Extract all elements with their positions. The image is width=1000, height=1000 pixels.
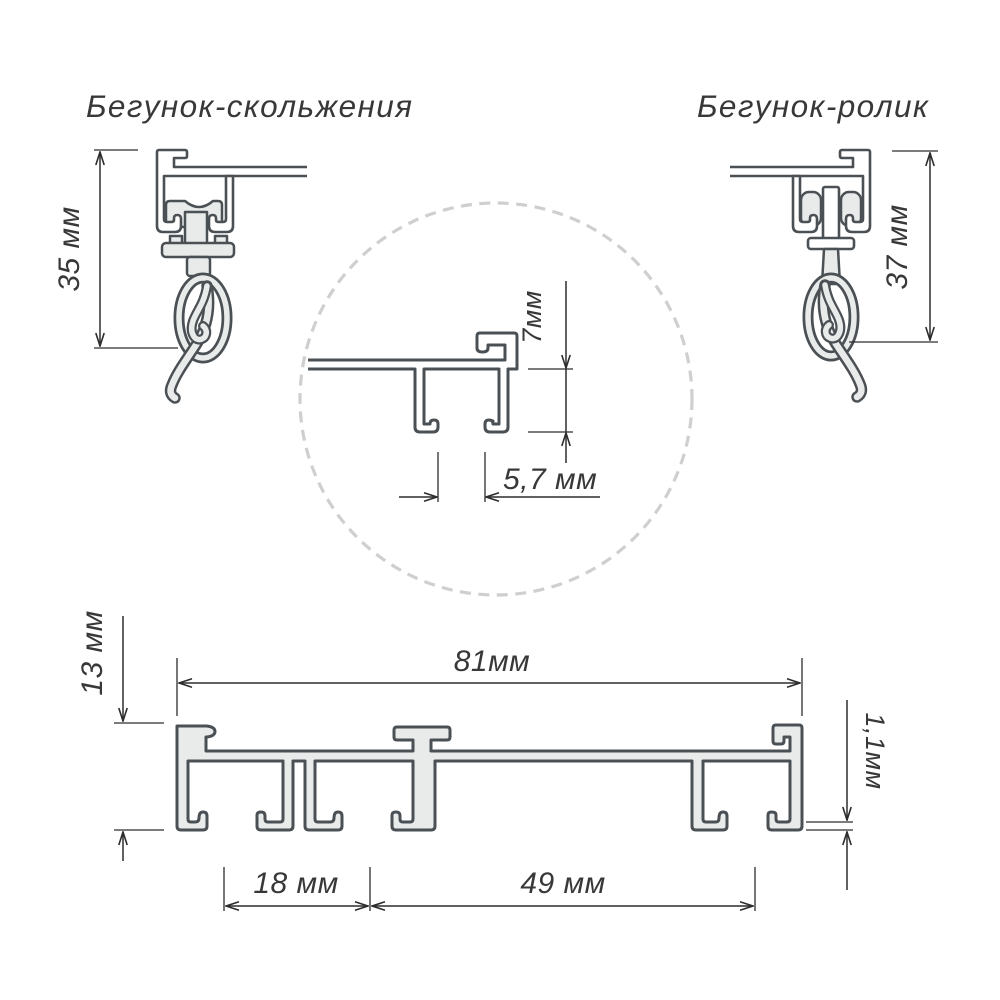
slider-runner-title: Бегунок-скольжения [86,88,413,124]
dim-slot-width: 5,7 мм [399,452,600,502]
slider-glider-neck [185,212,207,244]
second-groove-label: 49 мм [520,867,605,900]
slot-width-label: 5,7 мм [503,463,597,496]
dim-second-groove: 49 мм [372,867,755,911]
profile-shape [177,725,802,830]
wall-thickness-label: 1,1мм [860,712,890,789]
profile-height-label: 13 мм [76,610,109,695]
slider-flange [162,243,234,257]
first-groove-label: 18 мм [253,867,338,900]
detail-rail-section [308,333,517,432]
roller-runner-drawing: Бегунок-ролик 37 мм [697,88,938,397]
profile-detail-view: 7мм 5,7 мм [308,281,600,502]
detail-zoom-circle [300,203,692,595]
slider-runner-drawing: Бегунок-скольжения 35 мм [53,88,413,398]
dim-groove-depth: 7мм [517,281,573,463]
technical-drawing-page: 7мм 5,7 мм Бегунок-скольжения [0,0,1000,1000]
profile-width-label: 81мм [454,645,531,678]
roller-hanger-plate [823,187,839,243]
curtain-rail-diagram: 7мм 5,7 мм Бегунок-скольжения [0,0,1000,1000]
dim-wall-thickness: 1,1мм [806,700,890,890]
roller-flange [808,238,854,249]
dim-first-groove: 18 мм [224,867,370,911]
dim-profile-width: 81мм [177,645,802,716]
groove-depth-label: 7мм [517,290,547,344]
dim-profile-height: 13 мм [76,610,164,861]
roller-runner-title: Бегунок-ролик [697,88,929,124]
rail-profile-cross-section: 81мм 13 мм 1,1мм 18 мм [76,610,890,911]
roller-height-label: 37 мм [881,204,914,289]
slider-height-label: 35 мм [53,206,86,291]
